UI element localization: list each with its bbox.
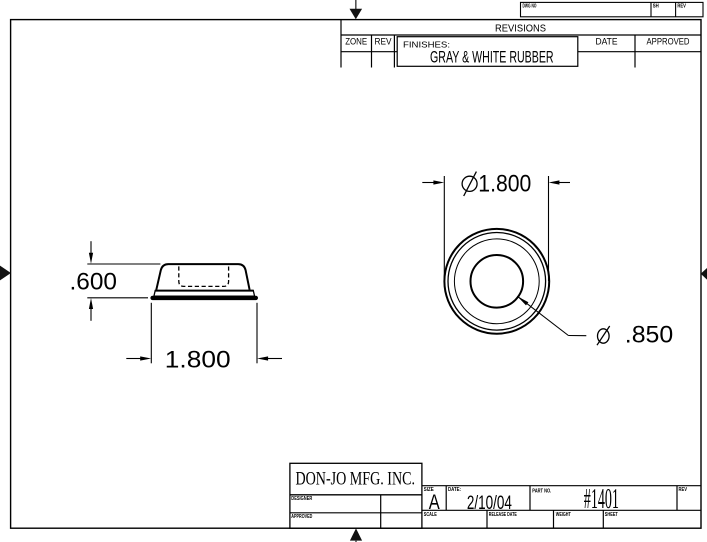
- svg-text:DWG NO: DWG NO: [523, 4, 537, 10]
- svg-text:REV: REV: [375, 37, 393, 48]
- svg-text:WEIGHT: WEIGHT: [556, 512, 571, 518]
- svg-text:.600: .600: [70, 269, 118, 296]
- svg-text:DATE: DATE: [596, 37, 618, 48]
- svg-text:DATE:: DATE:: [448, 487, 461, 493]
- svg-text:REVISIONS: REVISIONS: [495, 24, 546, 35]
- svg-text:APPROVED: APPROVED: [291, 514, 312, 520]
- svg-text:DESIGNER: DESIGNER: [291, 496, 312, 502]
- svg-text:ZONE: ZONE: [345, 37, 367, 48]
- svg-text:DON-JO MFG. INC.: DON-JO MFG. INC.: [296, 468, 416, 489]
- svg-text:.850: .850: [625, 322, 673, 349]
- svg-text:SH: SH: [653, 4, 659, 10]
- svg-text:RELEASE DATE: RELEASE DATE: [489, 512, 517, 518]
- svg-text:REV: REV: [679, 487, 688, 493]
- svg-text:2/10/04: 2/10/04: [467, 492, 512, 514]
- svg-text:REV: REV: [677, 4, 686, 10]
- svg-text:PART NO.: PART NO.: [532, 488, 551, 494]
- svg-text:1.800: 1.800: [165, 346, 231, 373]
- svg-text:GRAY & WHITE RUBBER: GRAY & WHITE RUBBER: [430, 49, 554, 67]
- svg-text:APPROVED: APPROVED: [647, 37, 690, 48]
- svg-text:A: A: [429, 491, 440, 514]
- svg-text:SHEET: SHEET: [605, 512, 618, 518]
- svg-text:SCALE: SCALE: [424, 512, 438, 518]
- svg-text:1.800: 1.800: [478, 170, 531, 197]
- svg-text:#1401: #1401: [584, 484, 619, 515]
